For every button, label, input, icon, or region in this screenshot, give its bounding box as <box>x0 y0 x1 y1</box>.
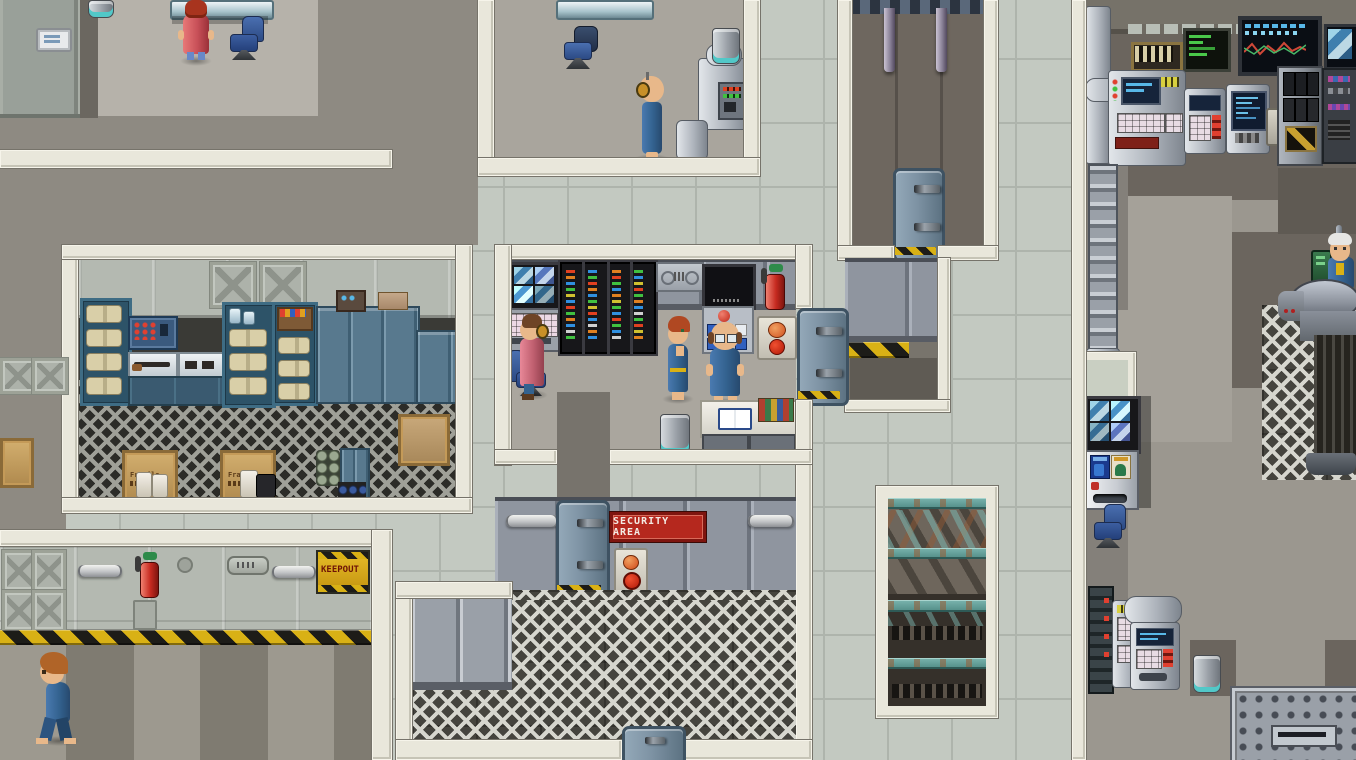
cctv-pane <box>514 286 533 303</box>
screen-line <box>1126 89 1144 92</box>
security-room-west-border <box>396 582 412 760</box>
coin-button <box>1091 482 1099 490</box>
floor-grate-platform[interactable] <box>1232 688 1356 760</box>
gold-screen <box>1285 126 1317 152</box>
cross-braces <box>888 510 986 548</box>
text-line <box>1236 102 1252 104</box>
chair-seat <box>1094 522 1122 540</box>
wall-pipe-handle <box>506 515 558 527</box>
jar <box>229 308 241 324</box>
text-line <box>1236 112 1248 114</box>
x-panel <box>32 358 68 394</box>
tech-room-south-wall <box>478 158 760 176</box>
security-room-south-border-right <box>680 740 812 760</box>
red-name-plate <box>1115 137 1159 149</box>
rack-vents <box>1328 120 1350 140</box>
foot <box>36 738 48 744</box>
data-row <box>1245 31 1299 35</box>
sacks <box>278 383 310 400</box>
dispense-tray <box>1093 494 1127 503</box>
screen-line <box>1140 638 1158 640</box>
wall-pipe-handle <box>78 565 122 577</box>
red-button <box>769 339 785 355</box>
waveform-chart <box>1244 38 1306 60</box>
blue-suit-torso <box>46 682 70 722</box>
security-room-nw-border <box>396 582 512 598</box>
cctv-quad-monitor[interactable] <box>509 262 565 312</box>
coffee-machine[interactable] <box>336 290 366 312</box>
white-hair <box>1328 233 1352 245</box>
grate-slot <box>1271 725 1337 747</box>
red-leds <box>723 87 741 91</box>
sacks <box>86 305 122 323</box>
door-kickplate <box>798 391 840 399</box>
hanging-pipe <box>936 8 947 72</box>
security-area-sign: SECURITY AREA <box>610 512 706 542</box>
slipper <box>198 52 205 60</box>
belt <box>670 368 686 372</box>
storage-north-border <box>62 245 472 259</box>
wall-pipe-handle <box>272 566 316 578</box>
extinguisher-body <box>140 562 159 598</box>
right-wing-west-border <box>1072 0 1086 760</box>
access-panel[interactable] <box>133 600 157 630</box>
character-woman-walking[interactable] <box>28 650 90 746</box>
trash-can[interactable] <box>1193 655 1221 693</box>
hand <box>208 30 214 40</box>
raised-block-dark <box>850 358 940 403</box>
storage-drawers[interactable] <box>128 376 224 406</box>
interior-metal-wall <box>412 590 512 690</box>
chest-vneck <box>676 346 684 356</box>
extinguisher-handle <box>769 264 783 272</box>
blue-jumpsuit <box>642 102 662 154</box>
card-reader[interactable] <box>36 28 72 52</box>
door-hinge <box>577 561 603 569</box>
industrial-machine[interactable] <box>676 58 748 164</box>
truss-beam <box>888 548 986 559</box>
truss-beam <box>888 498 986 509</box>
reading-desk[interactable] <box>700 400 798 438</box>
breaker <box>1307 72 1319 96</box>
product-label <box>1114 457 1128 461</box>
red-hair <box>185 0 207 18</box>
console-keypad-2[interactable] <box>1130 622 1180 690</box>
eye <box>42 670 46 674</box>
console-keypad[interactable] <box>1184 88 1226 154</box>
vent-row <box>892 626 982 640</box>
x-panel <box>32 550 66 592</box>
cctv-quad-monitor-2[interactable] <box>1085 396 1141 454</box>
console-screen <box>1136 628 1174 646</box>
terminal-line <box>1189 41 1203 44</box>
door-kickplate <box>894 247 936 255</box>
button-pad <box>1165 113 1183 133</box>
slipper <box>187 52 194 60</box>
card-reader-slot <box>44 35 60 38</box>
hazard-floor-line <box>0 630 372 645</box>
raised-block-east-border <box>938 258 950 410</box>
fire-extinguisher[interactable] <box>757 262 791 310</box>
sacks <box>86 329 122 347</box>
shotgun-stock <box>132 364 142 371</box>
door-hinge <box>577 519 603 527</box>
door-hinge <box>645 737 665 744</box>
office-chair-dark[interactable] <box>562 26 596 72</box>
cross-braces <box>888 612 986 626</box>
wall-bolt <box>177 557 193 573</box>
red-light <box>1284 309 1288 313</box>
extinguisher-hose <box>761 268 767 284</box>
blue-terminal <box>1231 91 1267 131</box>
monitor-room-east-border-top <box>796 245 812 308</box>
trash-can[interactable] <box>88 0 114 18</box>
shaft-west-wall <box>838 0 852 260</box>
hanging-pipe <box>884 8 895 72</box>
x-panel <box>0 358 36 394</box>
character-technician-headset[interactable] <box>634 72 670 164</box>
supply-shelf-crate[interactable] <box>272 302 318 406</box>
red-button-grid <box>134 322 158 340</box>
headset-earcup <box>636 82 650 98</box>
yellow-leds <box>1161 77 1179 87</box>
keypad-screen <box>1189 95 1221 111</box>
led-column <box>588 270 597 273</box>
open-book <box>718 408 752 430</box>
extinguisher-handle <box>143 552 157 560</box>
orange-button <box>768 322 786 338</box>
blue-suit <box>710 348 740 396</box>
rack-divider <box>582 262 585 354</box>
switch <box>160 324 168 336</box>
vending-machine[interactable] <box>1085 450 1139 510</box>
gold-vent-grill <box>1131 42 1183 72</box>
vent-slots <box>674 272 684 281</box>
ladder-pipe-run <box>1088 164 1118 354</box>
hair-tuft <box>708 332 714 344</box>
bottom-left-east-border <box>372 530 392 760</box>
monitor-label <box>713 299 739 302</box>
swirl-screen <box>1328 29 1352 59</box>
swirl-monitor[interactable] <box>1324 24 1356 70</box>
extinguisher-body <box>765 274 785 310</box>
supply-shelf[interactable] <box>80 298 132 406</box>
canned-goods-stack[interactable] <box>316 450 340 486</box>
wall-vent-panel <box>656 262 704 292</box>
fire-extinguisher[interactable] <box>132 550 164 598</box>
rack-lights <box>1328 76 1350 82</box>
character-overseer-glasses[interactable] <box>704 318 746 408</box>
vent-circle <box>661 271 675 285</box>
card-reader-slot <box>44 40 60 43</box>
shaft-bracket-rail <box>850 0 986 14</box>
vent-bars <box>1135 46 1173 62</box>
console-large[interactable] <box>1108 70 1186 166</box>
wall-speaker <box>227 556 269 575</box>
led-column <box>566 270 575 273</box>
vent-slots <box>1235 133 1259 143</box>
pistol <box>185 361 197 369</box>
feet <box>672 392 684 400</box>
x-panel <box>2 550 36 592</box>
pod-base <box>1306 453 1356 475</box>
red-updo-hair <box>668 316 690 332</box>
security-door[interactable] <box>556 500 610 600</box>
keypad <box>1189 115 1211 141</box>
character-receptionist-red-robe[interactable] <box>178 0 214 66</box>
door-hinge <box>914 185 940 193</box>
weapon-rack-shotgun[interactable] <box>128 352 178 378</box>
hand <box>737 364 744 376</box>
doorway-to-security <box>557 450 610 498</box>
storage-east-wall <box>456 245 472 513</box>
office-chair-right-wing[interactable] <box>1092 504 1126 550</box>
cctv-pane <box>535 267 554 284</box>
text-line <box>1236 97 1258 99</box>
office-south-wall <box>0 150 392 168</box>
char-shadow <box>180 56 212 66</box>
monitor-room-south-border-right <box>610 450 812 464</box>
hazard-ledge <box>845 342 909 358</box>
breaker <box>1295 98 1307 122</box>
trash-can[interactable] <box>660 414 690 454</box>
box-on-lockers <box>378 292 408 310</box>
cctv-pane <box>1090 423 1109 441</box>
sacks <box>86 377 122 395</box>
breaker <box>1283 72 1295 96</box>
equipment-rack <box>1322 68 1356 164</box>
office-door-wall <box>0 0 80 118</box>
cctv-pane <box>1111 423 1130 441</box>
monitor-room-east-door[interactable] <box>797 308 849 406</box>
wall-monitor[interactable] <box>702 264 756 310</box>
slot-opening <box>1278 732 1326 737</box>
white-sack <box>136 472 152 498</box>
headset-antenna <box>646 72 649 80</box>
rack-slots <box>1328 88 1350 94</box>
monitor-room-north-border <box>495 245 812 259</box>
red-buttons <box>1212 115 1221 139</box>
bottle <box>1094 464 1104 476</box>
led-column <box>612 270 621 273</box>
headset-earcup <box>536 324 549 339</box>
red-button <box>623 572 641 590</box>
shaft-east-wall <box>984 0 998 260</box>
blue-lights <box>341 295 357 303</box>
vent-row <box>892 684 982 698</box>
cardboard-box[interactable] <box>398 414 450 466</box>
door-hinge <box>816 327 842 335</box>
security-room-south-border-left <box>396 740 622 760</box>
product-window-green <box>1111 455 1131 479</box>
keepout-sign-text: KEEPOUT <box>321 565 359 575</box>
sign-hazard-top <box>318 552 368 559</box>
sacks <box>86 353 122 371</box>
terminal-monitor-green[interactable] <box>1183 28 1231 72</box>
jar <box>243 311 255 325</box>
crate-contents <box>280 309 306 317</box>
red-light <box>1291 309 1295 313</box>
door-hinge <box>914 223 940 231</box>
led-column <box>634 270 643 273</box>
x-panel <box>32 590 66 632</box>
storage-south-wall <box>62 498 472 513</box>
breaker <box>1307 98 1319 122</box>
sacks <box>278 337 310 354</box>
extinguisher-hose <box>135 556 141 572</box>
game-viewport: Fragile Fragile <box>0 0 1356 760</box>
storage-control-panel[interactable] <box>128 316 178 350</box>
office-chair[interactable] <box>228 16 262 62</box>
door-button-panel[interactable] <box>614 548 648 594</box>
raised-block-south-border <box>845 400 950 412</box>
truss-beam <box>888 658 986 669</box>
wall-pipe-handle <box>748 515 794 527</box>
weapon-rack-pistols[interactable] <box>178 352 224 378</box>
hand <box>178 30 184 40</box>
character-redhead-vault-suit[interactable] <box>660 316 696 404</box>
white-sack <box>152 474 168 498</box>
orange-indicator <box>623 555 639 570</box>
red-indicator-column <box>1104 598 1109 668</box>
sacks <box>278 360 310 377</box>
keepout-sign: KEEPOUT <box>318 552 368 592</box>
led-strip <box>1111 79 1120 101</box>
bottom-left-north-border <box>0 530 392 546</box>
truss-pit[interactable] <box>888 498 986 706</box>
character-operator-pink-coat[interactable] <box>516 312 550 400</box>
door-hinge <box>816 369 842 377</box>
cctv-pane <box>535 286 554 303</box>
security-room-south-door[interactable] <box>622 726 686 760</box>
security-area-sign-text: SECURITY AREA <box>613 516 703 538</box>
pink-coat <box>520 338 544 386</box>
product-window-blue <box>1090 455 1110 479</box>
sacks <box>229 353 267 371</box>
rack-divider <box>630 262 633 354</box>
glasses-lens <box>727 334 737 343</box>
breaker-cabinet[interactable] <box>1277 66 1323 166</box>
dark-rack <box>1088 586 1114 694</box>
jars-row <box>338 482 366 498</box>
tech-room-east-wall <box>744 0 760 176</box>
terminal-line <box>1189 53 1207 56</box>
bottle <box>1115 464 1126 476</box>
eye <box>1334 247 1337 250</box>
screen-line <box>1140 633 1166 635</box>
console-keyboard <box>1117 113 1165 133</box>
supply-shelf-jars[interactable] <box>222 302 276 408</box>
sacks <box>229 329 267 347</box>
glass-desk[interactable] <box>556 0 654 20</box>
alarm-button-panel[interactable] <box>757 316 797 360</box>
vent-slot <box>724 102 736 112</box>
suit-zipper <box>1336 263 1344 275</box>
chair-seat <box>564 42 592 60</box>
data-row <box>1245 24 1305 28</box>
terminal-line <box>1189 35 1211 38</box>
cctv-pane <box>514 267 533 284</box>
cctv-pane <box>1111 401 1130 421</box>
terminal-line <box>1189 47 1215 50</box>
console-screen <box>1121 77 1161 105</box>
glasses-lens <box>715 334 725 343</box>
red-buttons <box>1163 649 1173 667</box>
server-racks[interactable] <box>558 260 658 356</box>
eye <box>681 329 684 332</box>
sacks <box>229 377 267 395</box>
pistol <box>202 361 214 369</box>
text-line <box>1236 107 1260 109</box>
raised-block-wall <box>845 258 940 342</box>
foot <box>64 738 76 744</box>
product-label <box>1093 457 1107 461</box>
hand <box>706 364 713 376</box>
keypad <box>1136 649 1162 669</box>
green-leds <box>723 94 741 98</box>
tray-slot <box>1139 673 1167 681</box>
crate-edge <box>0 438 34 488</box>
machine-canister <box>676 120 708 160</box>
shoe <box>522 394 534 400</box>
vent-circle <box>685 271 699 285</box>
console-bluetext[interactable] <box>1226 84 1270 154</box>
scanner-pod[interactable] <box>1278 215 1356 485</box>
eye <box>1343 247 1346 250</box>
rack-lights <box>1328 104 1350 110</box>
monitor-room-south-border-left <box>495 450 557 464</box>
pod-cable-column <box>1314 335 1356 457</box>
rack-divider <box>607 262 610 354</box>
book-row <box>758 398 794 422</box>
screen-line <box>1126 83 1152 86</box>
horizontal-tank <box>1124 596 1182 624</box>
truss-beam <box>888 600 986 612</box>
text-line <box>1236 117 1256 119</box>
speaker-slots <box>237 562 257 568</box>
monitor-room-west-border <box>495 245 511 465</box>
security-wall-base-mesh <box>495 590 796 600</box>
sign-hazard-bottom <box>318 585 368 592</box>
tech-room-west-wall <box>478 0 494 176</box>
breaker <box>1283 98 1295 122</box>
cctv-pane <box>1090 401 1109 421</box>
chair-seat <box>230 34 258 52</box>
trash-can[interactable] <box>712 28 740 64</box>
black-equipment <box>256 474 276 498</box>
breaker <box>1295 72 1307 96</box>
blue-lockers[interactable] <box>316 306 420 404</box>
red-robe <box>183 14 209 54</box>
x-panel <box>2 590 36 632</box>
